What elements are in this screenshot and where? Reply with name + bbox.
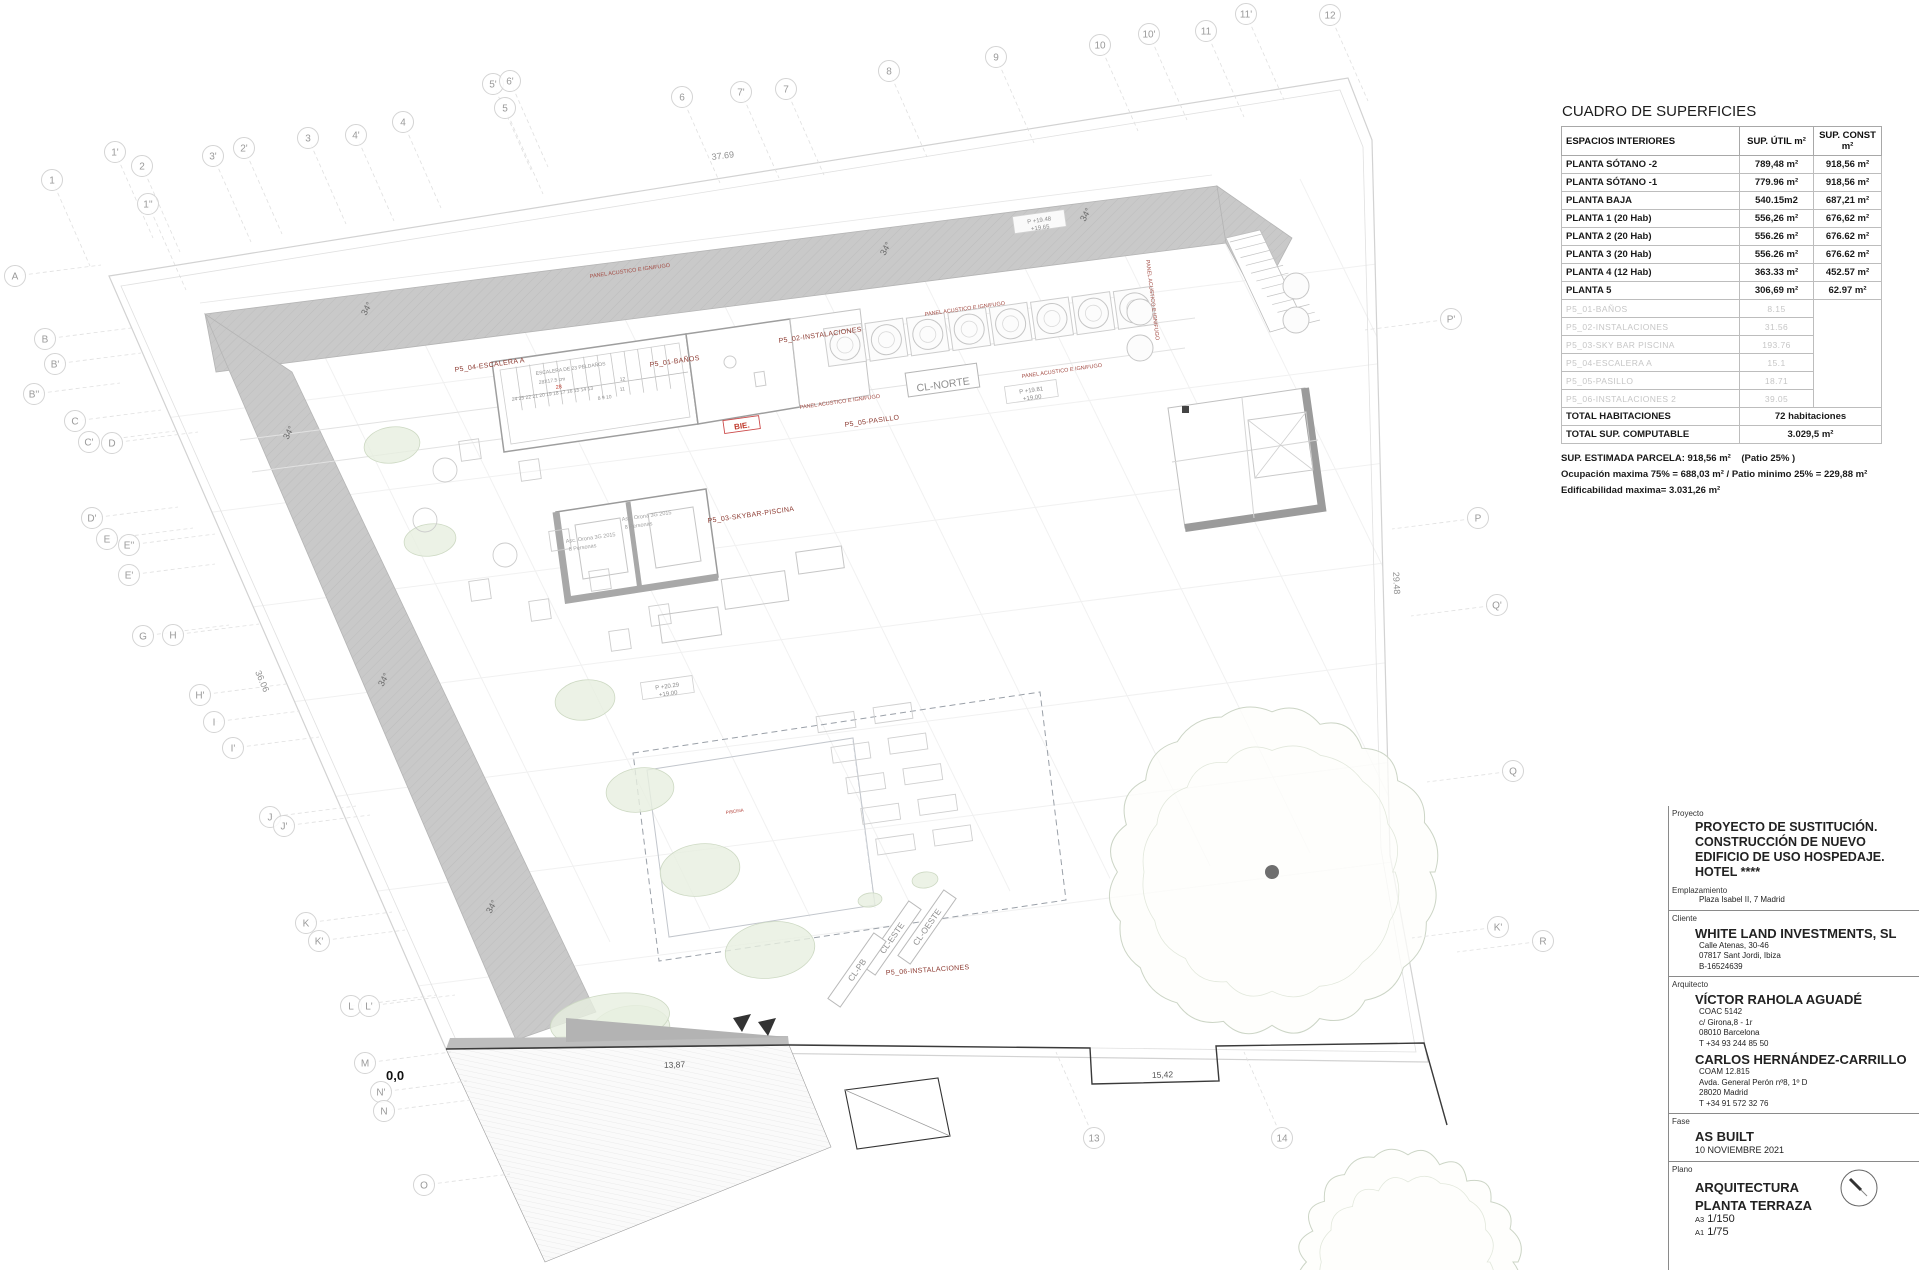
grid-bubble: 14	[1272, 1128, 1293, 1149]
cliente-line-3: B-16524639	[1669, 962, 1919, 973]
grid-bubble-label: Q'	[1492, 601, 1502, 612]
grid-leader-line	[510, 81, 548, 167]
cl-boxes: CL-OESTECL-ESTECL-PB	[828, 890, 956, 1007]
plan-text-label: 0,0	[386, 1068, 404, 1083]
grid-leader-line	[1206, 31, 1244, 117]
grid-leader-line	[741, 92, 779, 178]
grid-leader-line	[306, 912, 392, 923]
arquitecto-label: Arquitecto	[1669, 980, 1919, 989]
grid-bubble: P'	[1441, 309, 1462, 330]
arquitecto2-name: CARLOS HERNÁNDEZ-CARRILLO	[1669, 1052, 1919, 1067]
grid-leader-line	[369, 995, 455, 1006]
grid-bubble: L'	[359, 996, 380, 1017]
grid-bubble: 3	[298, 128, 319, 149]
grid-bubble: Q	[1503, 761, 1524, 782]
grid-bubble-label: 11	[1201, 27, 1212, 38]
grid-leader-line	[1100, 45, 1138, 131]
cliente-line-2: 07817 Sant Jordi, Ibiza	[1669, 951, 1919, 962]
surfaces-row: PLANTA 4 (12 Hab)363.33 m²452.57 m²	[1562, 264, 1882, 282]
grid-leader-line	[308, 138, 346, 224]
grid-leader-line	[786, 89, 824, 175]
level-marker: P +19.81+19.00	[1004, 380, 1058, 406]
grid-bubble-label: 14	[1276, 1134, 1288, 1145]
row-name: PLANTA 2 (20 Hab)	[1562, 228, 1740, 246]
grid-leader-line	[129, 534, 215, 545]
grid-bubble-label: R	[1539, 937, 1546, 948]
grid-bubble-label: 8	[886, 67, 892, 78]
grid-bubble-label: Q	[1509, 767, 1517, 778]
grid-bubble: B'	[45, 354, 66, 375]
grid-bubble-label: D	[108, 439, 115, 450]
total-label: TOTAL SUP. COMPUTABLE	[1562, 426, 1740, 444]
proyecto-line-4: HOTEL ****	[1669, 865, 1919, 880]
hvac-unit	[865, 318, 908, 361]
planting-bed	[362, 423, 422, 466]
row-name: PLANTA BAJA	[1562, 192, 1740, 210]
grid-bubble-label: J	[268, 813, 273, 824]
row-sup-util: 540.15m2	[1740, 192, 1814, 210]
pool-deck-dashed	[633, 692, 1066, 961]
grid-bubble-label: M	[361, 1059, 369, 1070]
drawing-sheet: CL-OESTECL-ESTECL-PB P5_04-ESCALERA AESC…	[0, 0, 1920, 1270]
sun-lounger	[876, 834, 916, 855]
grid-leader-line	[1246, 14, 1284, 100]
arq2-line-1: COAM 12.815	[1669, 1067, 1919, 1078]
grid-leader-line	[107, 528, 193, 539]
surfaces-row: PLANTA SÓTANO -1779.96 m²918,56 m²	[1562, 174, 1882, 192]
arquitecto1-name: VÍCTOR RAHOLA AGUADÉ	[1669, 992, 1919, 1007]
sun-lounger	[846, 773, 886, 794]
grid-bubble-label: C'	[84, 438, 93, 449]
hvac-unit	[948, 308, 991, 351]
grid-bubble: 9	[986, 47, 1007, 68]
row-sup-const	[1814, 354, 1882, 372]
row-sup-const	[1814, 318, 1882, 336]
grid-bubble: E''	[119, 535, 140, 556]
surfaces-row: PLANTA BAJA540.15m2687,21 m²	[1562, 192, 1882, 210]
grid-bubble: O	[414, 1175, 435, 1196]
row-sup-const: 918,56 m²	[1814, 174, 1882, 192]
grid-leader-line	[1365, 319, 1451, 330]
trees	[1109, 707, 1521, 1270]
surfaces-notes: SUP. ESTIMADA PARCELA: 918,56 m² (Patio …	[1561, 452, 1881, 498]
grid-leader-line	[1411, 605, 1497, 616]
grid-bubble: 2'	[234, 138, 255, 159]
grid-bubble-label: B'	[51, 360, 60, 371]
grid-bubble-label: 4	[400, 118, 406, 129]
surfaces-row: PLANTA 5306,69 m²62.97 m²	[1562, 282, 1882, 300]
grid-leader-line	[200, 684, 286, 695]
square-table	[529, 599, 552, 622]
row-sup-const: 676,62 m²	[1814, 210, 1882, 228]
row-sup-util: 789,48 m²	[1740, 156, 1814, 174]
row-sup-util: 39.05	[1740, 390, 1814, 408]
surfaces-row: PLANTA 3 (20 Hab)556.26 m²676.62 m²	[1562, 246, 1882, 264]
total-value: 72 habitaciones	[1740, 408, 1882, 426]
grid-bubble: 5	[495, 98, 516, 119]
total-label: TOTAL HABITACIONES	[1562, 408, 1740, 426]
level-value-2: +19.00	[1023, 394, 1043, 403]
grid-bubble: B	[35, 329, 56, 350]
grid-leader-line	[52, 180, 90, 266]
total-value: 3.029,5 m²	[1740, 426, 1882, 444]
grid-bubble-label: J'	[281, 822, 288, 833]
row-name: PLANTA 4 (12 Hab)	[1562, 264, 1740, 282]
hvac-fan	[1283, 307, 1309, 333]
grid-bubble-label: 1''	[143, 200, 152, 211]
grid-leader-line	[173, 624, 259, 635]
proyecto-label: Proyecto	[1669, 809, 1919, 818]
grid-bubble: 1	[42, 170, 63, 191]
hvac-fan	[1283, 273, 1309, 299]
grid-leader-line	[682, 97, 720, 183]
grid-bubble-label: H	[169, 631, 176, 642]
grid-bubble-label: 1'	[111, 148, 119, 159]
grid-leader-line	[1457, 941, 1543, 952]
plan-text-label: 36.06	[253, 669, 271, 694]
surfaces-panel: CUADRO DE SUPERFICIES ESPACIOS INTERIORE…	[1561, 103, 1881, 500]
planting-bed	[657, 839, 743, 902]
row-name: P5_04-ESCALERA A	[1562, 354, 1740, 372]
row-name: P5_02-INSTALACIONES	[1562, 318, 1740, 336]
surfaces-title: CUADRO DE SUPERFICIES	[1562, 103, 1881, 120]
grid-leader-line	[505, 108, 543, 194]
plan-text-label: 12	[619, 376, 626, 383]
plano-line-1: ARQUITECTURA	[1669, 1180, 1919, 1195]
row-name: P5_06-INSTALACIONES 2	[1562, 390, 1740, 408]
grid-bubble: K	[296, 913, 317, 934]
row-sup-const: 687,21 m²	[1814, 192, 1882, 210]
plan-text-label: 13,87	[664, 1059, 686, 1070]
grid-bubble: 3'	[203, 146, 224, 167]
row-sup-const	[1814, 336, 1882, 354]
surfaces-row: PLANTA 1 (20 Hab)556,26 m²676,62 m²	[1562, 210, 1882, 228]
grid-leader-line	[889, 71, 927, 157]
section-cliente: Cliente WHITE LAND INVESTMENTS, SL Calle…	[1669, 910, 1919, 977]
grid-bubble-label: 4'	[352, 131, 360, 142]
grid-leader-line	[1427, 771, 1513, 782]
grid-bubble: 12	[1320, 5, 1341, 26]
grid-leader-line	[34, 383, 120, 394]
row-sup-const	[1814, 390, 1882, 408]
grid-leader-line	[129, 564, 215, 575]
gate-flag-1	[733, 1014, 751, 1032]
sofa	[796, 546, 845, 574]
scale-a3-row: A3 1/150	[1669, 1213, 1919, 1226]
sofa	[721, 571, 789, 610]
boundary-quad	[845, 1078, 950, 1149]
square-table	[519, 459, 542, 482]
gate-flag-2	[758, 1018, 776, 1036]
note-ocupacion: Ocupación maxima 75% = 688,03 m² / Patio…	[1561, 468, 1881, 482]
grid-bubble: 7'	[731, 82, 752, 103]
plan-text-label: P5_06-INSTALACIONES	[886, 964, 970, 977]
grid-bubble: E'	[119, 565, 140, 586]
grid-bubble-label: N'	[376, 1088, 385, 1099]
grid-bubble: I'	[223, 738, 244, 759]
grid-bubble-label: K'	[315, 937, 324, 948]
tree-crown	[1298, 1149, 1522, 1270]
grid-leader-line	[365, 1052, 451, 1063]
proyecto-line-2: CONSTRUCCIÓN DE NUEVO	[1669, 835, 1919, 850]
round-table	[433, 458, 457, 482]
grid-bubble-label: I	[213, 718, 216, 729]
row-sup-util: 18.71	[1740, 372, 1814, 390]
pool	[633, 692, 1066, 961]
row-sup-util: 556.26 m²	[1740, 246, 1814, 264]
grid-bubble-label: 13	[1088, 1134, 1100, 1145]
row-sup-const: 676.62 m²	[1814, 228, 1882, 246]
row-sup-const: 452.57 m²	[1814, 264, 1882, 282]
planting-bed	[553, 676, 618, 724]
section-proyecto: Proyecto PROYECTO DE SUSTITUCIÓN. CONSTR…	[1669, 806, 1919, 910]
surfaces-table: ESPACIOS INTERIORES SUP. ÚTIL m² SUP. CO…	[1561, 126, 1882, 444]
grid-bubble-label: 12	[1324, 11, 1336, 22]
cl-norte-box: CL-NORTE	[905, 363, 980, 397]
grid-bubble-label: 6	[679, 93, 685, 104]
grid-bubble-label: C	[71, 417, 78, 428]
arq1-line-1: COAC 5142	[1669, 1007, 1919, 1018]
row-sup-util: 306,69 m²	[1740, 282, 1814, 300]
sun-lounger	[888, 733, 928, 754]
row-sup-util: 15.1	[1740, 354, 1814, 372]
proyecto-line-1: PROYECTO DE SUSTITUCIÓN.	[1669, 820, 1919, 835]
grid-bubble: C	[65, 411, 86, 432]
note-edificabilidad: Edificabilidad maxima= 3.031,26 m²	[1561, 484, 1881, 498]
stair-room	[492, 334, 698, 452]
grid-bubble: 6	[672, 87, 693, 108]
grid-leader-line	[403, 122, 441, 208]
grid-bubble: B''	[24, 384, 45, 405]
grid-bubble: 10	[1090, 35, 1111, 56]
grid-leader-line	[75, 410, 161, 421]
surfaces-row: P5_03-SKY BAR PISCINA193.76	[1562, 336, 1882, 354]
arq2-line-4: T +34 91 572 32 76	[1669, 1099, 1919, 1110]
right-room-block	[1168, 388, 1322, 528]
grid-bubble-label: P'	[1447, 315, 1456, 326]
grid-bubble: K'	[1488, 917, 1509, 938]
grid-bubble: 4	[393, 112, 414, 133]
note-parcela: SUP. ESTIMADA PARCELA: 918,56 m² (Patio …	[1561, 452, 1881, 466]
fase-label: Fase	[1669, 1117, 1919, 1126]
plan-text-label: 37.69	[711, 149, 735, 162]
grid-bubble-label: E''	[124, 541, 135, 552]
cliente-name: WHITE LAND INVESTMENTS, SL	[1669, 926, 1919, 941]
cliente-label: Cliente	[1669, 914, 1919, 923]
plan-text-label: 15,42	[1152, 1069, 1174, 1080]
grid-bubble: Q'	[1487, 595, 1508, 616]
grid-bubble-label: 3	[305, 134, 311, 145]
grid-bubble: G	[133, 626, 154, 647]
row-sup-const: 918,56 m²	[1814, 156, 1882, 174]
grid-bubble-label: 6'	[506, 77, 514, 88]
grid-bubble-label: 7'	[737, 88, 745, 99]
row-name: P5_01-BAÑOS	[1562, 300, 1740, 318]
row-sup-util: 556.26 m²	[1740, 228, 1814, 246]
grid-bubble: N	[374, 1101, 395, 1122]
grid-bubble: C'	[79, 432, 100, 453]
title-block: Proyecto PROYECTO DE SUSTITUCIÓN. CONSTR…	[1668, 806, 1919, 1270]
tree-trunk	[1265, 865, 1279, 879]
row-sup-util: 31.56	[1740, 318, 1814, 336]
surfaces-total-row: TOTAL HABITACIONES72 habitaciones	[1562, 408, 1882, 426]
fase-value: AS BUILT	[1669, 1129, 1919, 1144]
surfaces-row: P5_06-INSTALACIONES 239.05	[1562, 390, 1882, 408]
row-name: PLANTA 3 (20 Hab)	[1562, 246, 1740, 264]
grid-bubble: D	[102, 433, 123, 454]
grid-leader-line	[319, 930, 405, 941]
emplazamiento-value: Plaza Isabel II, 7 Madrid	[1669, 895, 1919, 906]
grid-leader-line	[15, 265, 101, 276]
grid-bubble-label: B''	[29, 390, 40, 401]
grid-leader-line	[356, 135, 394, 221]
grid-bubble: 7	[776, 79, 797, 100]
grid-bubble-label: I'	[231, 744, 236, 755]
arq1-line-2: c/ Girona,8 - 1r	[1669, 1018, 1919, 1029]
grid-bubble-label: A	[12, 272, 19, 283]
emplazamiento-label: Emplazamiento	[1669, 886, 1919, 895]
surfaces-row: P5_01-BAÑOS8.15	[1562, 300, 1882, 318]
row-sup-util: 556,26 m²	[1740, 210, 1814, 228]
surfaces-row: P5_04-ESCALERA A15.1	[1562, 354, 1882, 372]
grid-leader-line	[213, 156, 251, 242]
grid-bubble-label: K	[303, 919, 310, 930]
row-name: P5_03-SKY BAR PISCINA	[1562, 336, 1740, 354]
grid-bubble-label: 3'	[209, 152, 217, 163]
surfaces-header-row: ESPACIOS INTERIORES SUP. ÚTIL m² SUP. CO…	[1562, 127, 1882, 156]
grid-leader-line	[493, 84, 531, 170]
grid-bubble-label: 5'	[489, 80, 497, 91]
grid-leader-line	[45, 328, 131, 339]
planting-bed	[911, 870, 939, 889]
grid-bubble-label: 1	[49, 176, 55, 187]
grid-bubble-label: 10	[1094, 41, 1106, 52]
plan-text-label: P5_03-SKYBAR-PISCINA	[707, 506, 794, 525]
column-marker	[1182, 406, 1189, 413]
stair-room-wall	[492, 334, 698, 452]
sidewalk-hatch	[446, 1045, 831, 1262]
grid-bubble-label: 2	[139, 162, 145, 173]
grid-leader-line	[233, 737, 319, 748]
grid-bubble-label: N	[380, 1107, 387, 1118]
hvac-fan	[1127, 299, 1153, 325]
plan-text-label: 29.48	[1391, 572, 1402, 595]
grid-bubble: 4'	[346, 125, 367, 146]
grid-bubble-label: L	[348, 1002, 354, 1013]
grid-bubble: R	[1533, 931, 1554, 952]
col-espacios: ESPACIOS INTERIORES	[1562, 127, 1740, 156]
row-sup-util: 193.76	[1740, 336, 1814, 354]
hvac-fan	[1127, 335, 1153, 361]
grid-bubble: 1'	[105, 142, 126, 163]
grid-leader-line	[143, 625, 229, 636]
grid-bubble: 1''	[138, 194, 159, 215]
plan-text-label: P5_05-PASILLO	[844, 414, 900, 429]
plan-text-label: PISCINA	[725, 808, 744, 815]
row-name: P5_05-PASILLO	[1562, 372, 1740, 390]
grid-leader-line	[1056, 1052, 1094, 1138]
grid-leader-line	[1330, 15, 1368, 101]
row-sup-util: 8.15	[1740, 300, 1814, 318]
row-name: PLANTA SÓTANO -1	[1562, 174, 1740, 192]
surfaces-total-row: TOTAL SUP. COMPUTABLE3.029,5 m²	[1562, 426, 1882, 444]
grid-bubble: 6'	[500, 71, 521, 92]
grid-bubble: 11	[1196, 21, 1217, 42]
grid-bubble: 13	[1084, 1128, 1105, 1149]
sun-lounger	[873, 702, 913, 723]
row-sup-const	[1814, 372, 1882, 390]
grid-leader-line	[214, 711, 300, 722]
plan-text-label: PANEL ACUSTICO E IGNIFUGO	[1021, 363, 1103, 380]
surfaces-row: PLANTA 2 (20 Hab)556.26 m²676.62 m²	[1562, 228, 1882, 246]
grid-leader-line	[148, 204, 186, 290]
grid-bubble-label: 11'	[1240, 10, 1252, 21]
grid-bubble: K'	[309, 931, 330, 952]
level-marker: P +20.29+19.00	[640, 676, 694, 702]
arq1-line-4: T +34 93 244 85 50	[1669, 1039, 1919, 1050]
grid-leader-line	[384, 1100, 470, 1111]
plan-text-label: 28	[555, 384, 562, 391]
col-sup-util: SUP. ÚTIL m²	[1740, 127, 1814, 156]
row-sup-const: 62.97 m²	[1814, 282, 1882, 300]
plan-text-label: 11	[619, 386, 625, 393]
sun-lounger	[816, 711, 856, 732]
row-sup-const: 676.62 m²	[1814, 246, 1882, 264]
grid-bubble-label: E	[104, 535, 111, 546]
grid-bubble: P	[1468, 508, 1489, 529]
grid-bubble-label: O	[420, 1181, 428, 1192]
grid-bubble: J'	[274, 816, 295, 837]
arq2-line-2: Avda. General Perón nº8, 1º D	[1669, 1078, 1919, 1089]
planting-bed	[402, 521, 458, 560]
pool-basin	[647, 738, 875, 937]
grid-leader-line	[424, 1174, 510, 1185]
grid-bubble: 11'	[1236, 4, 1257, 25]
scale-a3-label: A3	[1695, 1215, 1704, 1224]
grid-bubble-label: 2'	[240, 144, 248, 155]
sun-lounger	[918, 794, 958, 815]
sun-lounger	[831, 742, 871, 763]
grid-leader-line	[55, 353, 141, 364]
plano-label: Plano	[1669, 1165, 1919, 1174]
fase-date: 10 NOVIEMBRE 2021	[1669, 1144, 1919, 1157]
section-fase: Fase AS BUILT 10 NOVIEMBRE 2021	[1669, 1113, 1919, 1161]
scale-a3-value: 1/150	[1707, 1213, 1735, 1225]
grid-bubble: 2	[132, 156, 153, 177]
arq2-line-3: 28020 Madrid	[1669, 1088, 1919, 1099]
grid-bubble: H'	[190, 685, 211, 706]
sun-lounger	[903, 764, 943, 785]
grid-leader-line	[244, 148, 282, 234]
proyecto-line-3: EDIFICIO DE USO HOSPEDAJE.	[1669, 850, 1919, 865]
grid-bubble-label: 10'	[1142, 30, 1155, 41]
grid-leader-line	[996, 57, 1034, 143]
level-value-2: +19.00	[659, 690, 679, 699]
grid-leader-line	[1244, 1052, 1282, 1138]
grid-bubble-label: E'	[125, 571, 134, 582]
round-table	[493, 543, 517, 567]
hvac-unit	[989, 302, 1032, 345]
planting-bed	[857, 891, 883, 908]
square-table	[609, 629, 632, 652]
row-sup-const	[1814, 300, 1882, 318]
grid-bubble-label: D'	[87, 514, 96, 525]
row-sup-util: 363.33 m²	[1740, 264, 1814, 282]
banos-wall	[686, 319, 800, 424]
scale-a1-value: 1/75	[1707, 1226, 1728, 1238]
plano-line-2: PLANTA TERRAZA	[1669, 1198, 1919, 1213]
scale-a1-label: A1	[1695, 1228, 1704, 1237]
